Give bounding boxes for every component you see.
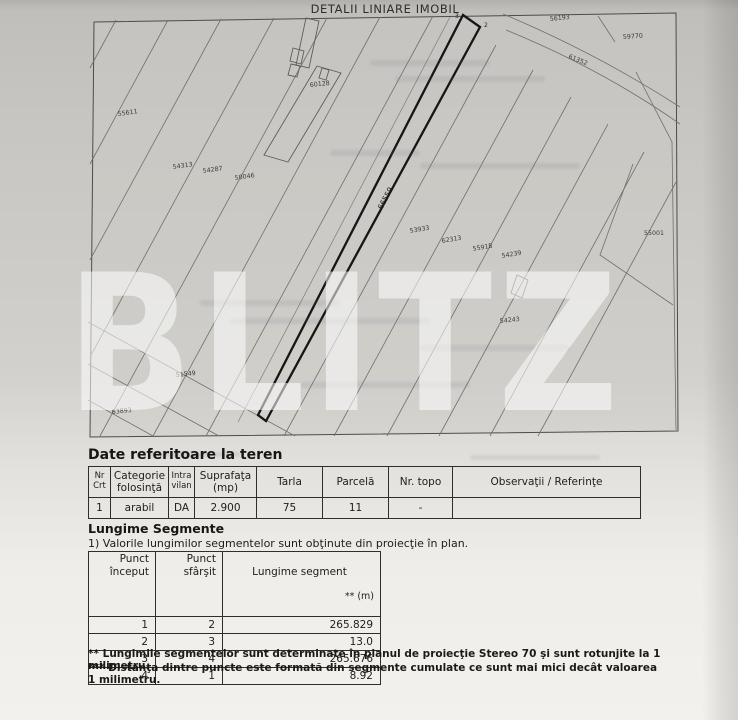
lungime-segment-label: Lungime segment: [225, 566, 374, 579]
col-nr-topo: Nr. topo: [389, 467, 453, 498]
cell-categorie: arabil: [111, 498, 169, 519]
segments-header-row: Punct început Punct sfârşit Lungime segm…: [89, 552, 381, 617]
segments-note: 1) Valorile lungimilor segmentelor sunt …: [88, 537, 468, 550]
cell-nr-topo: -: [389, 498, 453, 519]
land-table-header-row: Nr Crt Categorie folosinţă Intra vilan S…: [89, 467, 641, 498]
cell-length: 265.829: [223, 616, 381, 633]
bleedthrough-mark: [395, 76, 545, 82]
land-data-table: Nr Crt Categorie folosinţă Intra vilan S…: [88, 466, 641, 519]
bleedthrough-mark: [370, 60, 490, 66]
bleedthrough-mark: [470, 455, 600, 460]
col-parcela: Parcelă: [323, 467, 389, 498]
vertex-label-2: 2: [484, 22, 488, 29]
col-punct-sfarsit: Punct sfârşit: [156, 552, 223, 617]
cell-observatii: [453, 498, 641, 519]
cell-start: 1: [89, 616, 156, 633]
bleedthrough-mark: [300, 382, 470, 388]
bleedthrough-mark: [330, 150, 420, 156]
lungime-segment-unit: ** (m): [225, 591, 374, 602]
bleedthrough-mark: [420, 163, 580, 169]
segment-row: 1 2 265.829: [89, 616, 381, 633]
cell-intravilan: DA: [169, 498, 195, 519]
col-lungime-segment: Lungime segment ** (m): [223, 552, 381, 617]
col-intravilan: Intra vilan: [169, 467, 195, 498]
cadastral-map: 3 2 55611 54313 54287 50046 60128 66559 …: [88, 12, 680, 440]
cell-end: 2: [156, 616, 223, 633]
col-observatii: Observaţii / Referinţe: [453, 467, 641, 498]
segments-heading: Lungime Segmente: [88, 521, 224, 536]
col-punct-inceput: Punct început: [89, 552, 156, 617]
footnote-distanta: *** Distanţa dintre puncte este formată …: [88, 662, 668, 686]
scan-edge-shadow: [702, 0, 738, 720]
cell-suprafata: 2.900: [195, 498, 257, 519]
cell-tarla: 75: [257, 498, 323, 519]
parcel-label: 59770: [623, 33, 643, 41]
parcel-label: 55001: [644, 230, 664, 237]
col-nr-crt: Nr Crt: [89, 467, 111, 498]
bleedthrough-mark: [200, 300, 340, 306]
land-data-heading: Date referitoare la teren: [88, 447, 283, 463]
col-tarla: Tarla: [257, 467, 323, 498]
land-table-row: 1 arabil DA 2.900 75 11 -: [89, 498, 641, 519]
cell-nr-crt: 1: [89, 498, 111, 519]
bleedthrough-mark: [230, 318, 430, 324]
bleedthrough-mark: [420, 345, 570, 351]
col-categorie: Categorie folosinţă: [111, 467, 169, 498]
scanned-cadastral-document: { "title": "DETALII LINIARE IMOBIL", "wa…: [0, 0, 738, 720]
cell-parcela: 11: [323, 498, 389, 519]
col-suprafata: Suprafaţa (mp): [195, 467, 257, 498]
vertex-label-3: 3: [455, 13, 459, 20]
